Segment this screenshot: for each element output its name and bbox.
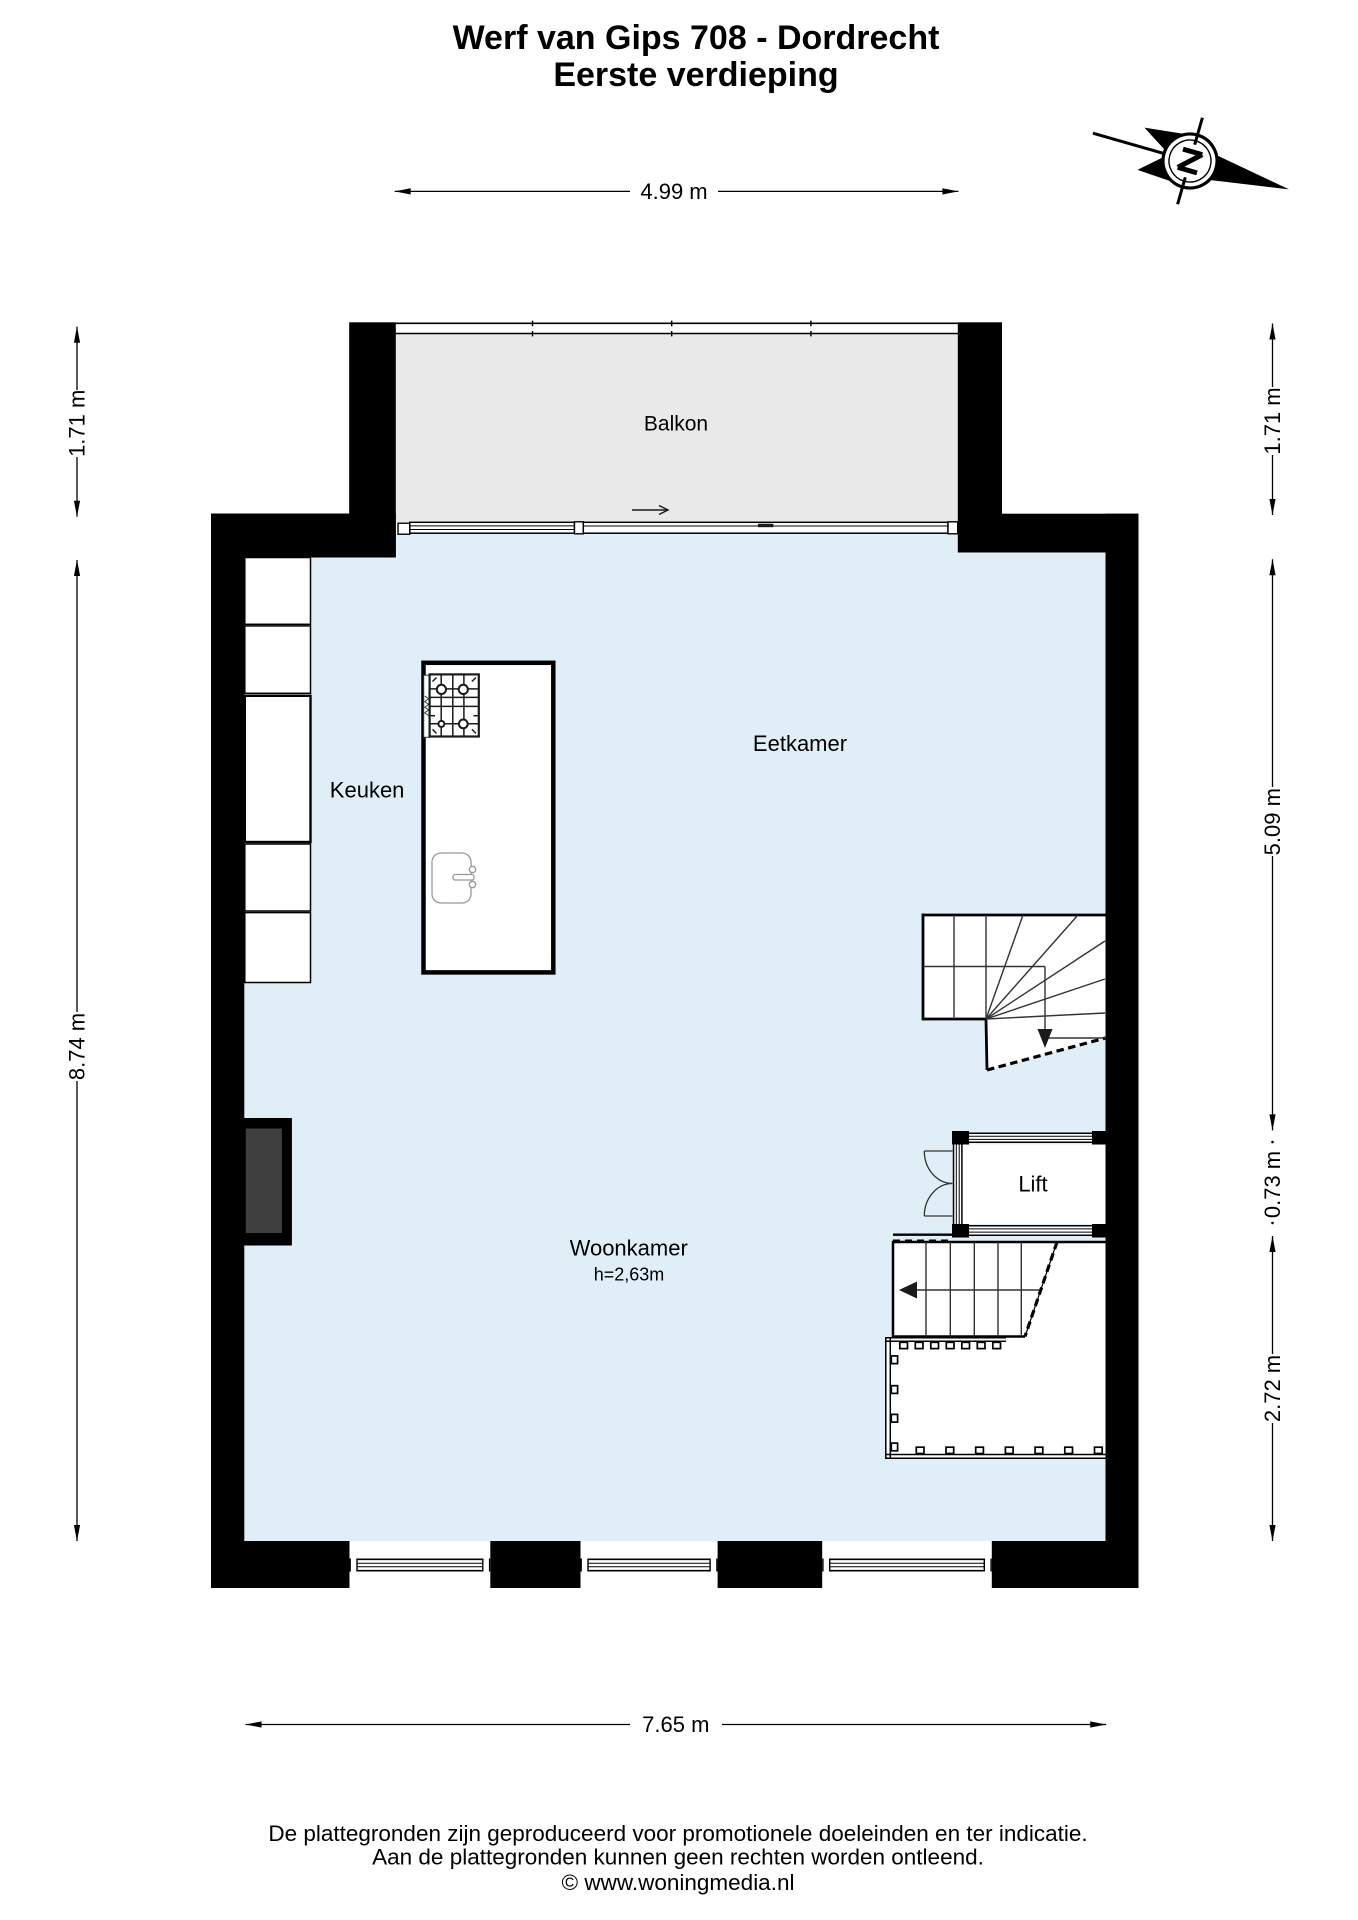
- svg-text:1.71 m: 1.71 m: [1260, 387, 1285, 454]
- svg-text:4.99 m: 4.99 m: [640, 179, 707, 204]
- svg-text:Eerste verdieping: Eerste verdieping: [553, 56, 838, 94]
- svg-text:7.65 m: 7.65 m: [642, 1712, 709, 1737]
- svg-text:De plattegronden zijn geproduc: De plattegronden zijn geproduceerd voor …: [268, 1821, 1087, 1846]
- svg-text:2.72 m: 2.72 m: [1260, 1355, 1285, 1422]
- svg-text:8.74 m: 8.74 m: [65, 1013, 90, 1080]
- svg-text:h=2,63m: h=2,63m: [594, 1265, 665, 1285]
- svg-text:Eetkamer: Eetkamer: [753, 731, 847, 756]
- svg-text:Werf van Gips 708 - Dordrecht: Werf van Gips 708 - Dordrecht: [453, 19, 940, 57]
- svg-text:Balkon: Balkon: [644, 413, 708, 436]
- svg-text:Aan de plattegronden kunnen ge: Aan de plattegronden kunnen geen rechten…: [372, 1845, 984, 1870]
- svg-text:5.09 m: 5.09 m: [1260, 788, 1285, 855]
- svg-text:Woonkamer: Woonkamer: [570, 1236, 688, 1261]
- svg-text:© www.woningmedia.nl: © www.woningmedia.nl: [562, 1870, 795, 1895]
- svg-text:Lift: Lift: [1018, 1172, 1047, 1197]
- svg-text:1.71 m: 1.71 m: [65, 390, 90, 457]
- svg-text:0.73 m: 0.73 m: [1260, 1151, 1285, 1218]
- svg-text:Keuken: Keuken: [330, 778, 405, 803]
